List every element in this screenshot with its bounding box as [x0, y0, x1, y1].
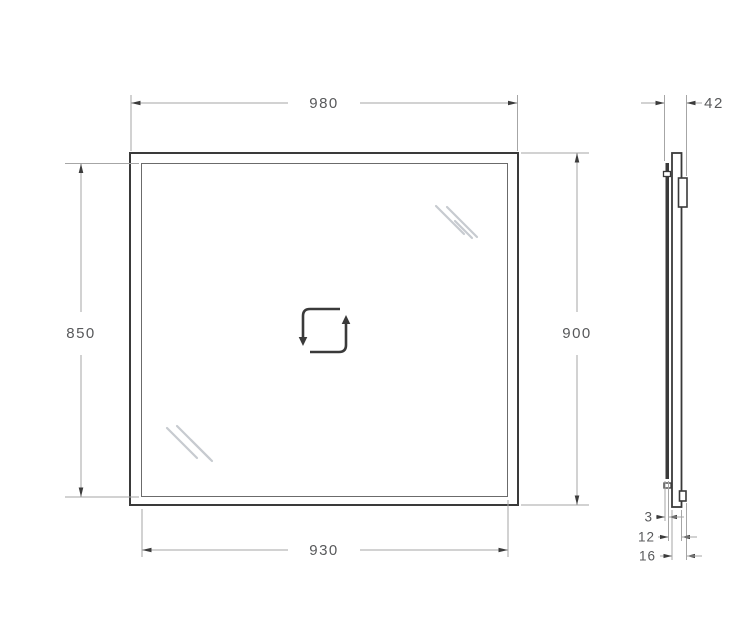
side-top-mounting-bracket: [679, 178, 688, 207]
arrowhead-up: [79, 164, 84, 174]
dimension-label-12: 12: [638, 530, 655, 545]
arrowhead-right: [664, 554, 673, 558]
dimension-side-stack: 3 12 16: [638, 481, 702, 564]
front-view: [130, 153, 518, 505]
dimension-bottom-width: 930: [142, 500, 508, 559]
arrowhead-right: [499, 548, 509, 553]
arrowhead-down: [79, 488, 84, 498]
arrowhead-up: [575, 153, 580, 163]
side-top-clip: [664, 172, 671, 177]
dimension-label-850: 850: [66, 325, 96, 342]
dimension-label-3: 3: [644, 510, 653, 525]
dimension-label-42: 42: [704, 95, 724, 112]
arrowhead-right: [656, 101, 665, 105]
dimension-left-height: 850: [65, 164, 139, 498]
dimension-right-height: 900: [521, 153, 592, 505]
drawing-canvas: 980 850 900 930: [0, 0, 750, 632]
arrowhead-right: [508, 101, 518, 106]
dimension-side-depth: 42: [641, 95, 724, 176]
arrowhead-down: [575, 496, 580, 506]
dimension-row-3: 3: [644, 510, 684, 525]
dimension-label-16: 16: [639, 549, 656, 564]
dimension-row-16: 16: [639, 549, 702, 564]
side-mirror-glass: [666, 163, 670, 479]
mirror-outer-frame: [130, 153, 518, 505]
dimension-top-width: 980: [131, 95, 518, 151]
arrowhead-left: [131, 101, 141, 106]
arrowhead-right: [657, 515, 666, 519]
side-view: [664, 153, 688, 507]
dimension-label-930: 930: [309, 542, 339, 559]
arrowhead-left: [142, 548, 152, 553]
dimension-label-980: 980: [309, 95, 339, 112]
arrowhead-right: [660, 535, 669, 539]
dimension-row-12: 12: [638, 530, 697, 545]
dimension-label-900: 900: [562, 325, 592, 342]
side-bottom-mounting-bracket: [680, 491, 687, 501]
arrowhead-left: [687, 101, 696, 105]
mirror-technical-drawing: 980 850 900 930: [0, 0, 750, 632]
